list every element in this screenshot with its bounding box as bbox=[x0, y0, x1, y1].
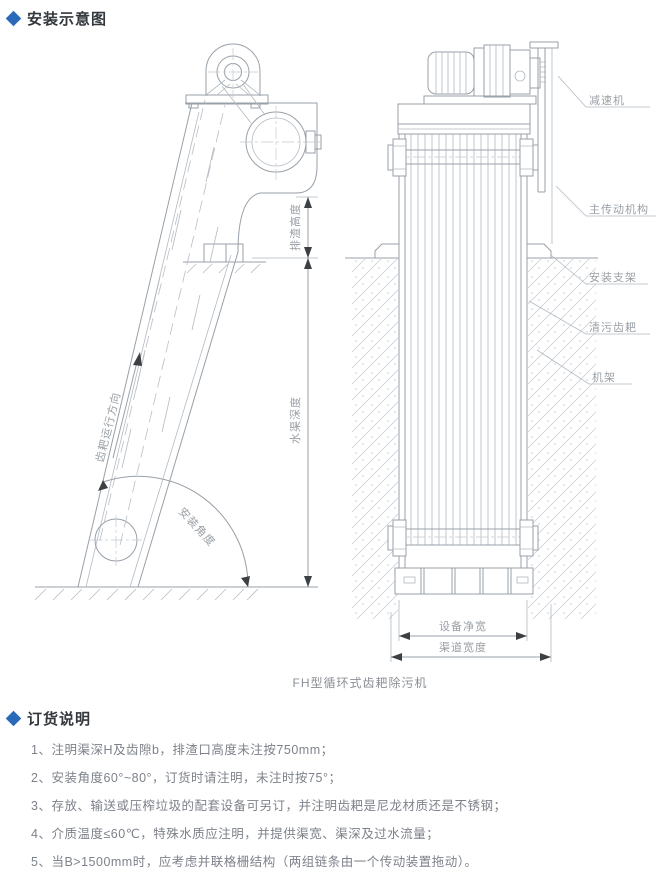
installation-diagram: 齿耙运行方向 安装角度 排渣高度 水渠深度 bbox=[0, 0, 660, 700]
front-view-drawing: 设备净宽 渠道宽度 bbox=[345, 42, 598, 662]
figure-caption: FH型循环式齿耙除污机 bbox=[230, 674, 490, 691]
frame-label: 机架 bbox=[592, 370, 616, 384]
cleaning-rake-label: 清污齿耙 bbox=[589, 321, 637, 334]
drive-sprocket bbox=[240, 106, 321, 180]
screen-body-outline bbox=[78, 103, 317, 587]
order-item-4: 4、介质温度≤60℃，特殊水质应注明，并提供渠宽、渠深及过水流量； bbox=[31, 823, 651, 842]
head-assembly bbox=[186, 44, 268, 123]
concrete-right bbox=[528, 259, 596, 619]
main-drive-label: 主传动机构 bbox=[589, 202, 649, 216]
order-section-title: 订货说明 bbox=[27, 708, 91, 729]
screen-bars bbox=[411, 134, 516, 545]
foot-wheel bbox=[90, 515, 142, 566]
concrete-left bbox=[352, 259, 398, 619]
discharge-height-label: 排渣高度 bbox=[288, 203, 302, 251]
base-boxes bbox=[395, 568, 533, 594]
gear-motor bbox=[424, 45, 546, 104]
equipment-width-label: 设备净宽 bbox=[439, 619, 487, 633]
channel-width-label: 渠道宽度 bbox=[439, 640, 487, 654]
install-angle-label: 安装角度 bbox=[176, 504, 219, 549]
reducer-label: 减速机 bbox=[589, 93, 625, 107]
order-item-5: 5、当B>1500mm时，应考虑并联格栅结构（两组链条由一个传动装置拖动）。 bbox=[31, 851, 651, 870]
head-box bbox=[398, 104, 530, 134]
side-view-drawing: 齿耙运行方向 安装角度 排渣高度 水渠深度 bbox=[35, 44, 321, 600]
discharge-height-dim bbox=[252, 197, 318, 258]
discharge-platform bbox=[183, 244, 266, 273]
mount-bracket-label: 安装支架 bbox=[589, 270, 637, 284]
upper-shaft bbox=[388, 139, 538, 176]
order-item-3: 3、存放、输送或压榨垃圾的配套设备可另订，并注明齿耙是尼龙材质还是不锈钢； bbox=[31, 795, 651, 814]
lower-shaft bbox=[388, 520, 538, 556]
order-item-1: 1、注明渠深H及齿隙b，排渣口高度未注按750mm； bbox=[31, 739, 651, 758]
page: 安装示意图 bbox=[0, 0, 660, 873]
ground-and-brackets bbox=[345, 244, 598, 258]
rake-direction-label: 齿耙运行方向 bbox=[92, 390, 123, 463]
order-section-header: 订货说明 bbox=[8, 708, 91, 729]
install-angle-arc bbox=[98, 476, 250, 587]
channel-depth-dim bbox=[304, 258, 312, 587]
channel-depth-label: 水渠深度 bbox=[288, 396, 302, 444]
section-diamond-icon bbox=[6, 711, 22, 727]
ground-line bbox=[35, 587, 318, 600]
order-item-2: 2、安装角度60°~80°，订货时请注明，未注时按75°； bbox=[31, 767, 651, 786]
